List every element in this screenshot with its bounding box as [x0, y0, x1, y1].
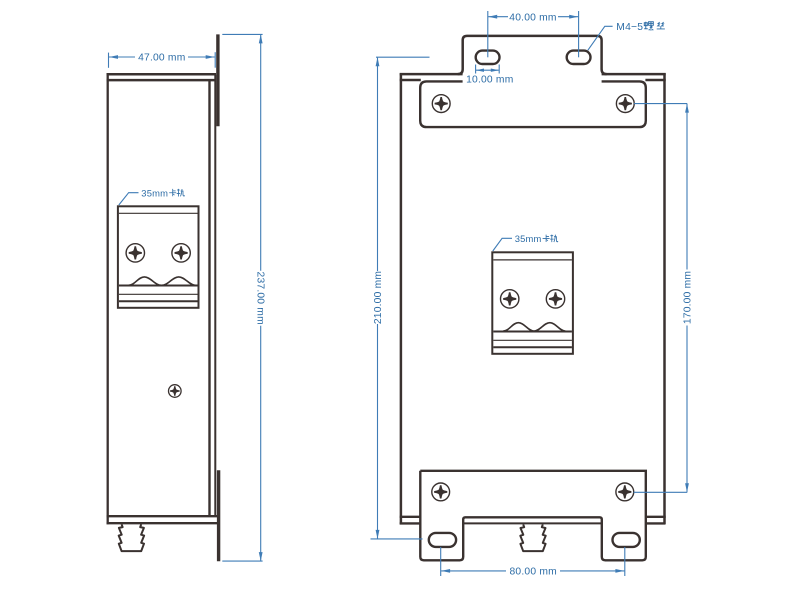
svg-text:210.00 mm: 210.00 mm	[373, 271, 384, 324]
svg-text:10.00 mm: 10.00 mm	[466, 74, 513, 85]
svg-text:M4−5: M4−5	[616, 22, 643, 33]
svg-text:35mm: 35mm	[515, 233, 542, 244]
svg-text:47.00 mm: 47.00 mm	[138, 53, 185, 64]
svg-text:35mm: 35mm	[141, 187, 168, 198]
svg-text:237.00 mm: 237.00 mm	[254, 272, 265, 325]
svg-text:40.00 mm: 40.00 mm	[509, 12, 556, 23]
svg-text:170.00 mm: 170.00 mm	[682, 271, 693, 324]
svg-text:80.00 mm: 80.00 mm	[510, 566, 557, 577]
